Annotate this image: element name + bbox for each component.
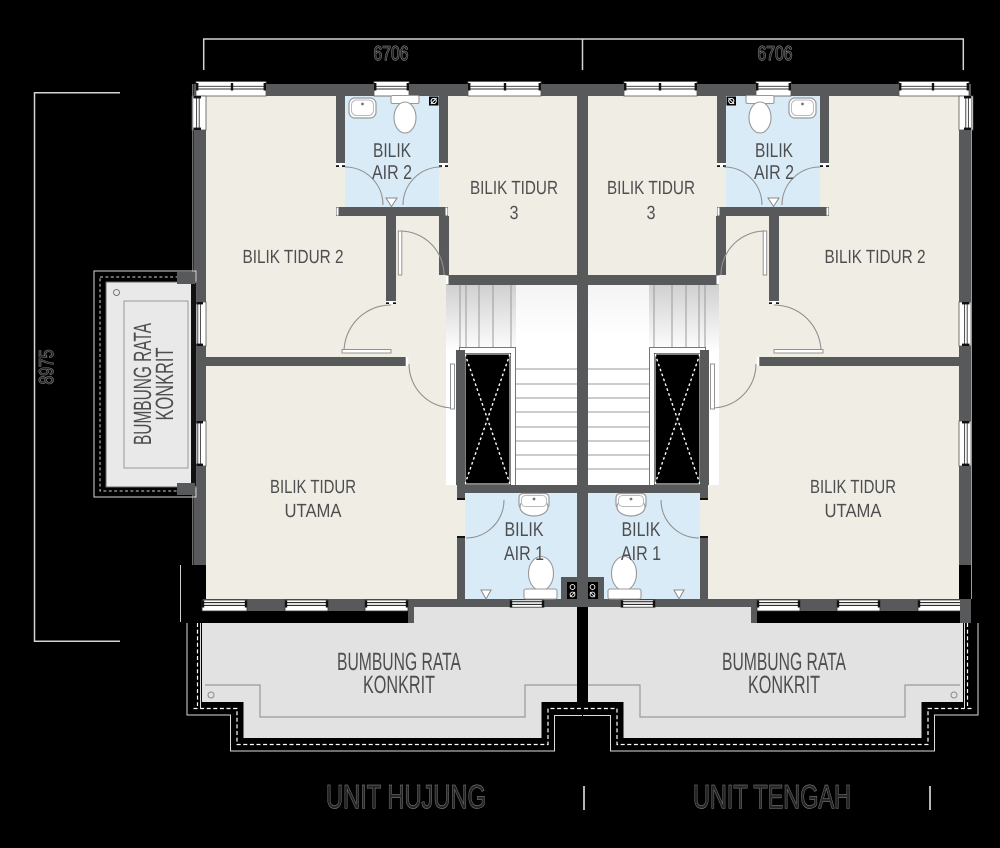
svg-text:6706: 6706	[374, 43, 409, 65]
svg-text:BILIK: BILIK	[622, 519, 662, 541]
svg-text:BILIK TIDUR: BILIK TIDUR	[470, 178, 558, 199]
svg-text:BILIK TIDUR: BILIK TIDUR	[607, 178, 695, 199]
svg-text:BILIK: BILIK	[373, 140, 412, 162]
svg-text:AIR 2: AIR 2	[372, 162, 412, 184]
svg-text:6706: 6706	[758, 43, 793, 65]
svg-text:8975: 8975	[36, 350, 58, 385]
svg-text:UNIT HUJUNG: UNIT HUJUNG	[326, 778, 486, 815]
svg-text:BILIK TIDUR 2: BILIK TIDUR 2	[243, 247, 344, 268]
svg-text:UTAMA: UTAMA	[285, 501, 342, 522]
svg-text:BILIK TIDUR 2: BILIK TIDUR 2	[825, 247, 926, 268]
svg-text:BILIK: BILIK	[505, 519, 545, 541]
svg-text:AIR 2: AIR 2	[754, 162, 794, 184]
svg-text:KONKRIT: KONKRIT	[363, 671, 435, 699]
svg-text:BILIK TIDUR: BILIK TIDUR	[270, 477, 356, 498]
svg-text:UTAMA: UTAMA	[825, 501, 882, 522]
svg-text:UNIT TENGAH: UNIT TENGAH	[693, 778, 851, 815]
svg-text:KONKRIT: KONKRIT	[748, 671, 820, 699]
svg-text:3: 3	[647, 203, 656, 224]
svg-text:AIR 1: AIR 1	[621, 543, 661, 565]
svg-text:3: 3	[510, 203, 519, 224]
svg-text:AIR 1: AIR 1	[504, 543, 544, 565]
svg-text:BILIK: BILIK	[755, 140, 794, 162]
svg-text:BILIK TIDUR: BILIK TIDUR	[810, 477, 896, 498]
svg-text:KONKRIT: KONKRIT	[151, 348, 179, 421]
